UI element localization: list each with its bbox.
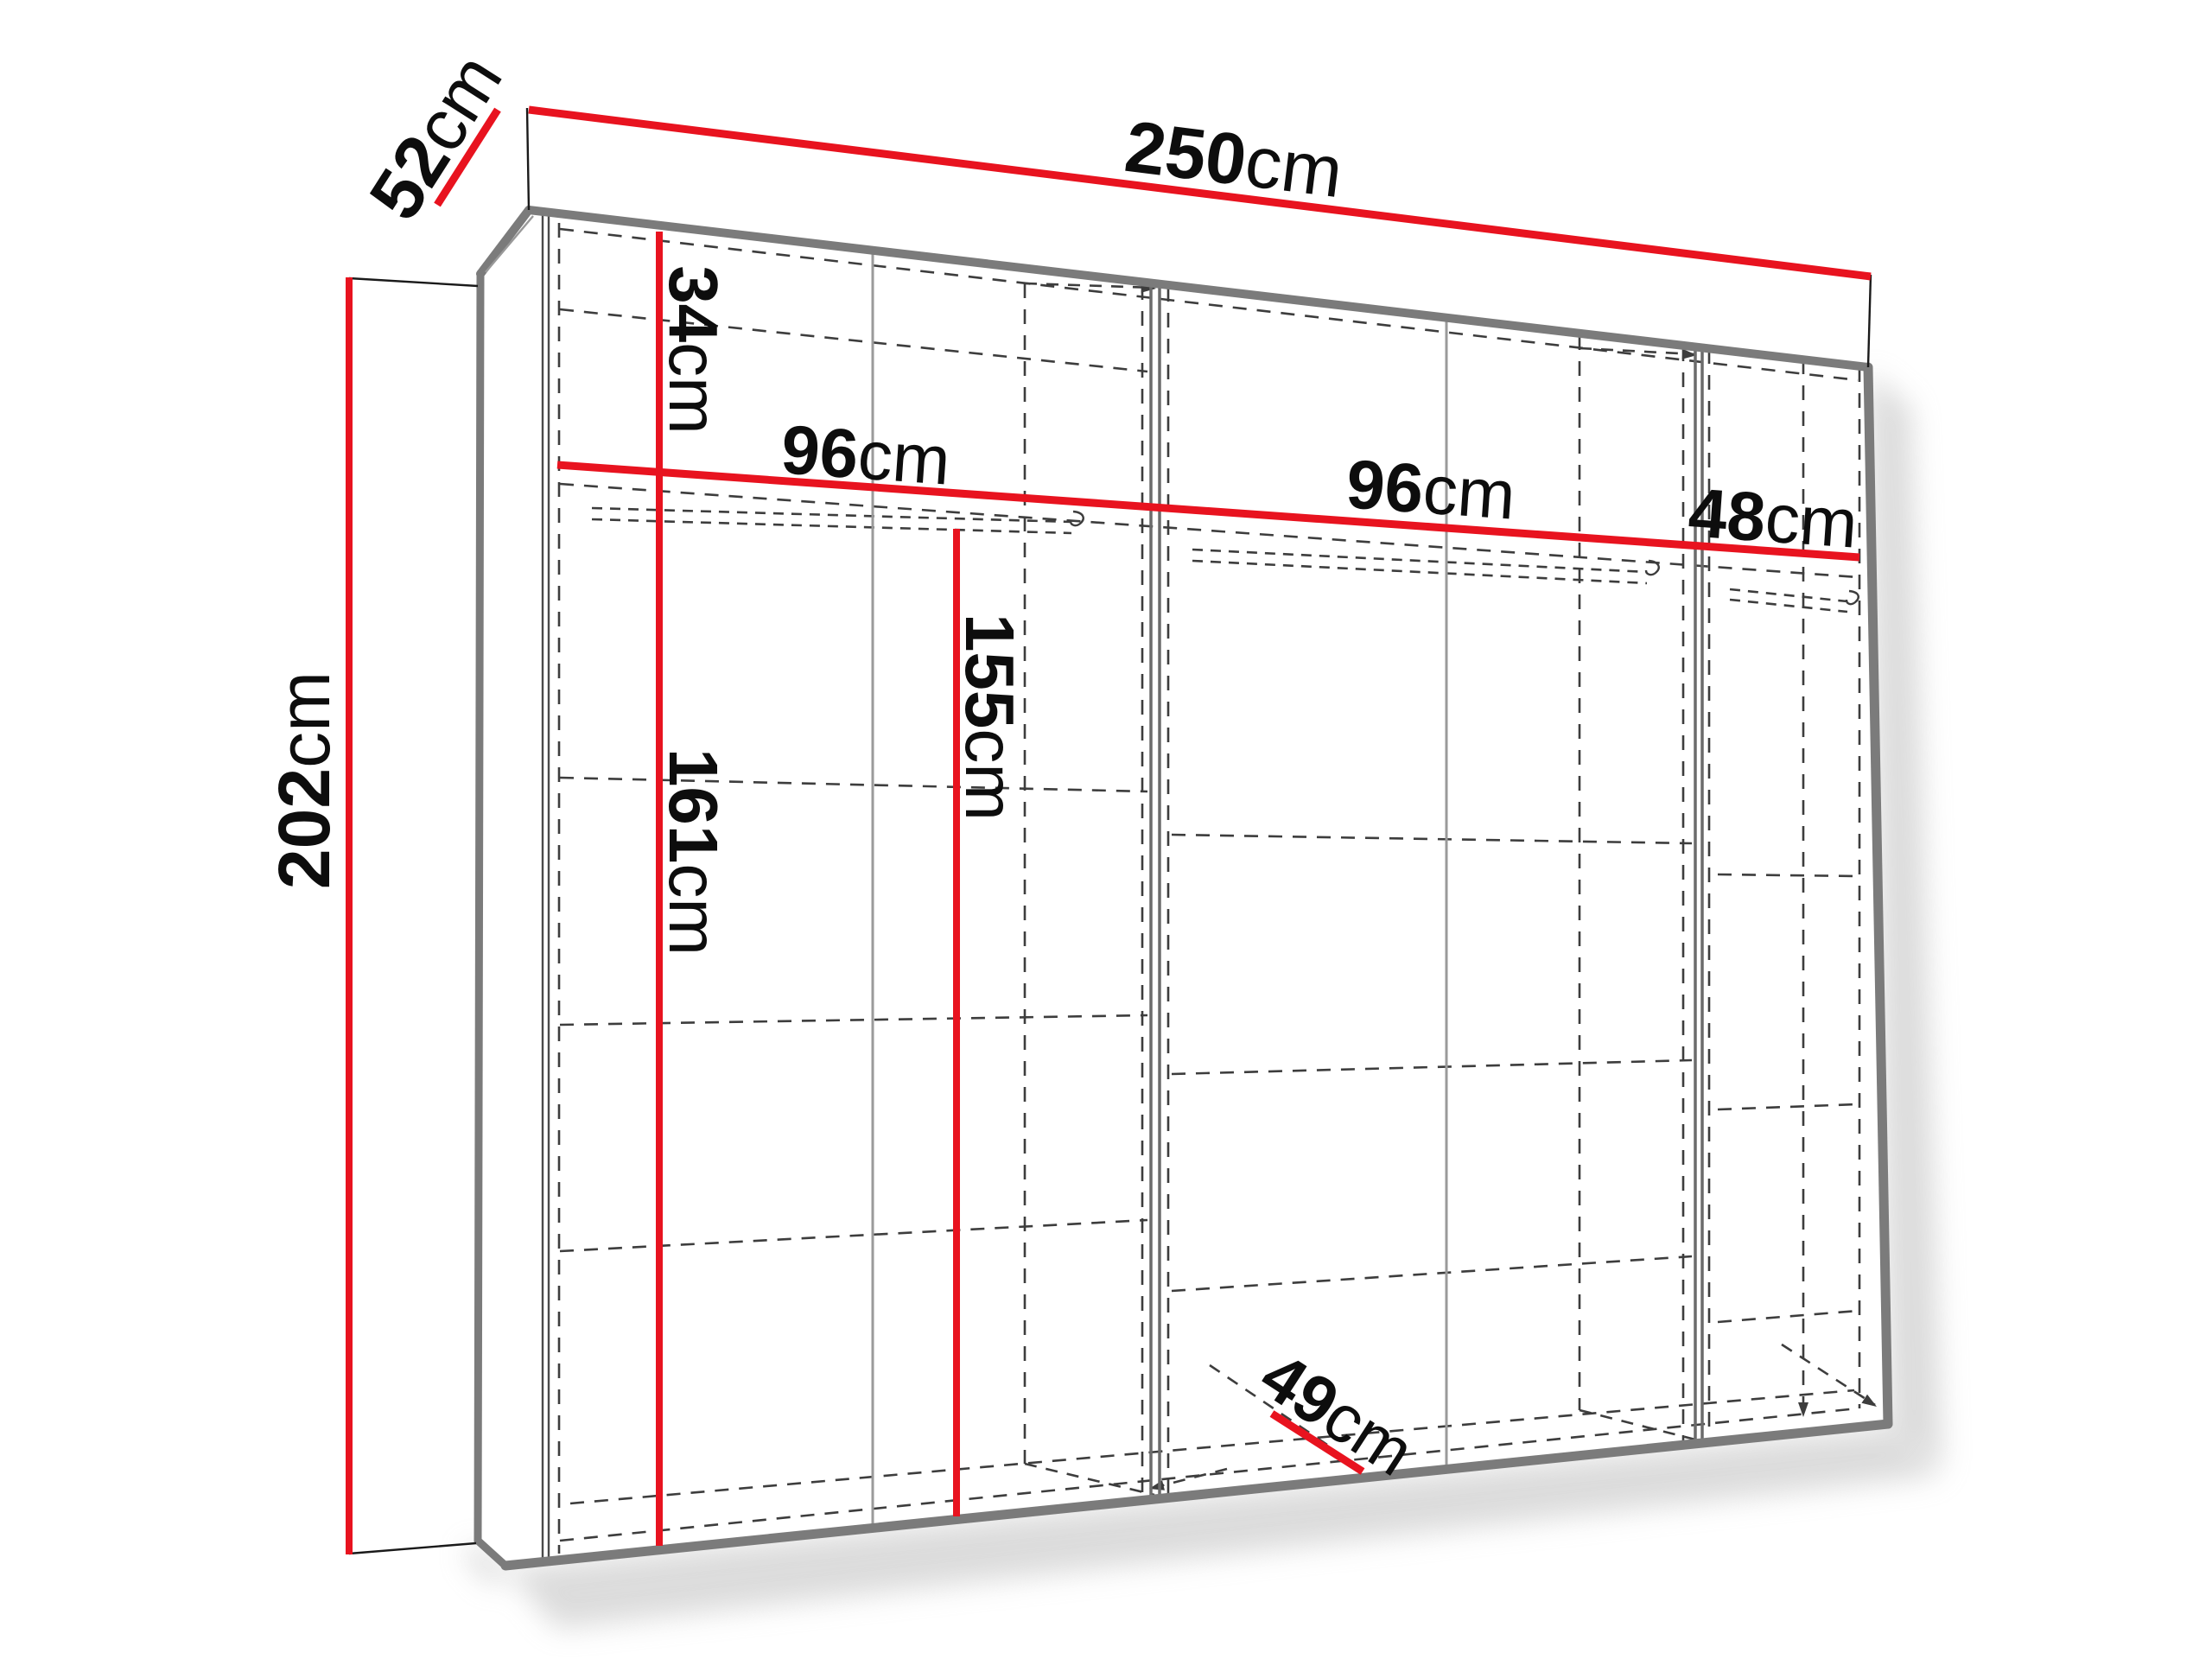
section-middle-width-label: 96cm xyxy=(1344,445,1517,533)
hanging-height-left-label: 161cm xyxy=(656,748,733,956)
section-middle-width-unit: cm xyxy=(1421,450,1518,533)
top-shelf-drop-label: 34cm xyxy=(656,265,733,435)
top-shelf-drop-unit: cm xyxy=(656,342,733,435)
section-left-width-label: 96cm xyxy=(779,410,952,499)
diagram-canvas: 250cm 52cm 202cm 34cm 96cm 96cm 48cm 161… xyxy=(0,0,2212,1659)
wardrobe-dimension-diagram: 250cm 52cm 202cm 34cm 96cm 96cm 48cm 161… xyxy=(0,0,2212,1659)
width-value: 250 xyxy=(1121,105,1251,201)
section-left-width-unit: cm xyxy=(855,416,953,499)
edge-left-side xyxy=(478,274,480,1541)
height-unit: cm xyxy=(264,671,345,768)
section-right-width-value: 48 xyxy=(1686,474,1768,556)
depth-dimension-label: 52cm xyxy=(353,40,518,233)
section-middle-width-value: 96 xyxy=(1344,445,1426,527)
section-left-width-value: 96 xyxy=(779,410,861,493)
hanging-height-left-unit: cm xyxy=(656,863,733,956)
height-value: 202 xyxy=(264,768,345,889)
hanging-height-middle-unit: cm xyxy=(952,728,1029,821)
hanging-height-middle-value: 155 xyxy=(952,613,1029,728)
section-right-width-unit: cm xyxy=(1763,479,1860,562)
height-tick-top xyxy=(349,278,478,286)
top-shelf-drop-value: 34 xyxy=(656,265,733,342)
height-dimension-label: 202cm xyxy=(264,671,345,889)
section-right-width-label: 48cm xyxy=(1686,474,1859,562)
hanging-height-left-value: 161 xyxy=(656,748,733,863)
hanging-height-middle-label: 155cm xyxy=(952,613,1029,821)
width-unit: cm xyxy=(1241,120,1347,213)
height-tick-bottom xyxy=(349,1543,476,1554)
